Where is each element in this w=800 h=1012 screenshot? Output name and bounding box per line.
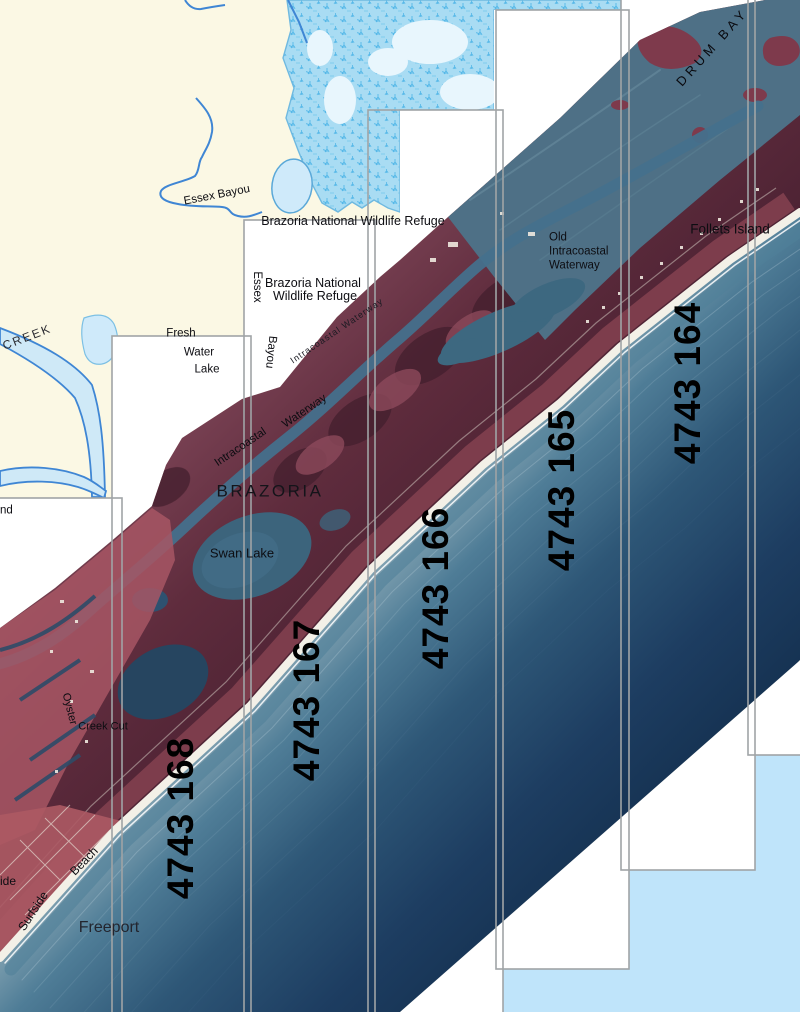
refuge-line2-label: Wildlife Refuge bbox=[273, 290, 357, 303]
water-label: Water bbox=[184, 347, 214, 359]
tile-number-4743-166: 4743 166 bbox=[415, 507, 457, 669]
refuge-banner-label: Brazoria National Wildlife Refuge bbox=[261, 215, 444, 228]
lake-label: Lake bbox=[195, 364, 220, 376]
creek-cut-label: Creek Cut bbox=[78, 722, 128, 733]
refuge-line1-label: Brazoria National bbox=[265, 277, 361, 290]
old-intracoastal-line2: Intracoastal bbox=[549, 246, 608, 258]
map-viewport[interactable]: DRUM BAY Follets Island Brazoria Nationa… bbox=[0, 0, 800, 1012]
brazoria-county-label: BRAZORIA bbox=[217, 483, 324, 500]
bayou-vertical-label: Bayou bbox=[263, 335, 278, 369]
tile-number-4743-168: 4743 168 bbox=[160, 737, 202, 899]
ide-fragment-label: ide bbox=[0, 875, 16, 887]
swan-lake-label: Swan Lake bbox=[210, 547, 274, 560]
old-intracoastal-line3: Waterway bbox=[549, 260, 600, 272]
essex-vertical-label: Essex bbox=[250, 271, 262, 302]
map-canvas bbox=[0, 0, 800, 1012]
old-intracoastal-line1: Old bbox=[549, 232, 567, 244]
tile-number-4743-167: 4743 167 bbox=[286, 619, 328, 781]
tile-number-4743-164: 4743 164 bbox=[667, 302, 709, 464]
freeport-label: Freeport bbox=[79, 920, 139, 936]
follets-island-label: Follets Island bbox=[690, 222, 770, 236]
fresh-label: Fresh bbox=[166, 328, 195, 340]
tile-number-4743-165: 4743 165 bbox=[541, 409, 583, 571]
nd-fragment-label: nd bbox=[0, 505, 13, 517]
